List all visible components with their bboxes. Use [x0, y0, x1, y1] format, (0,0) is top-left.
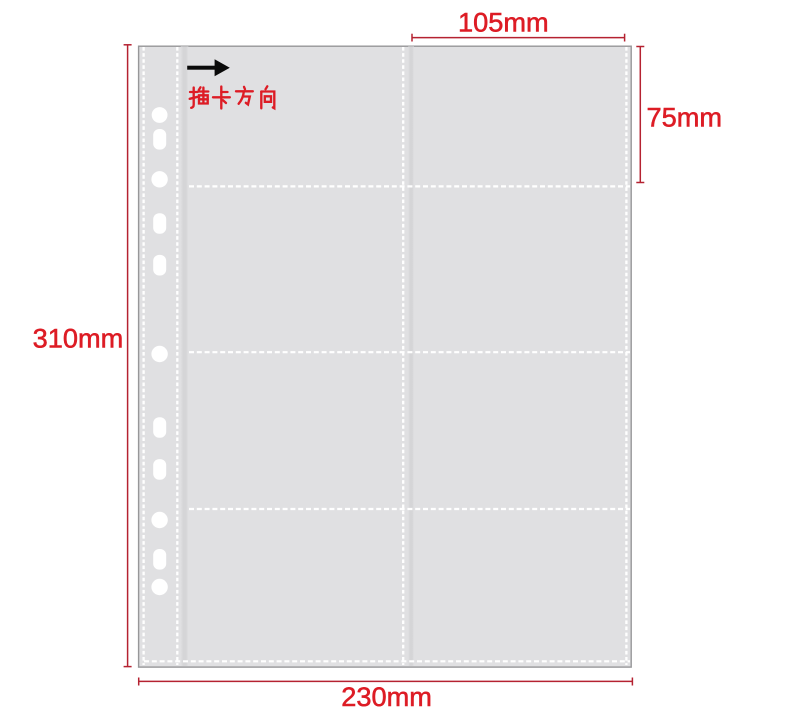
svg-text:230mm: 230mm	[341, 681, 432, 708]
svg-text:75mm: 75mm	[647, 101, 723, 132]
svg-text:105mm: 105mm	[458, 7, 549, 38]
svg-text:310mm: 310mm	[33, 323, 124, 354]
